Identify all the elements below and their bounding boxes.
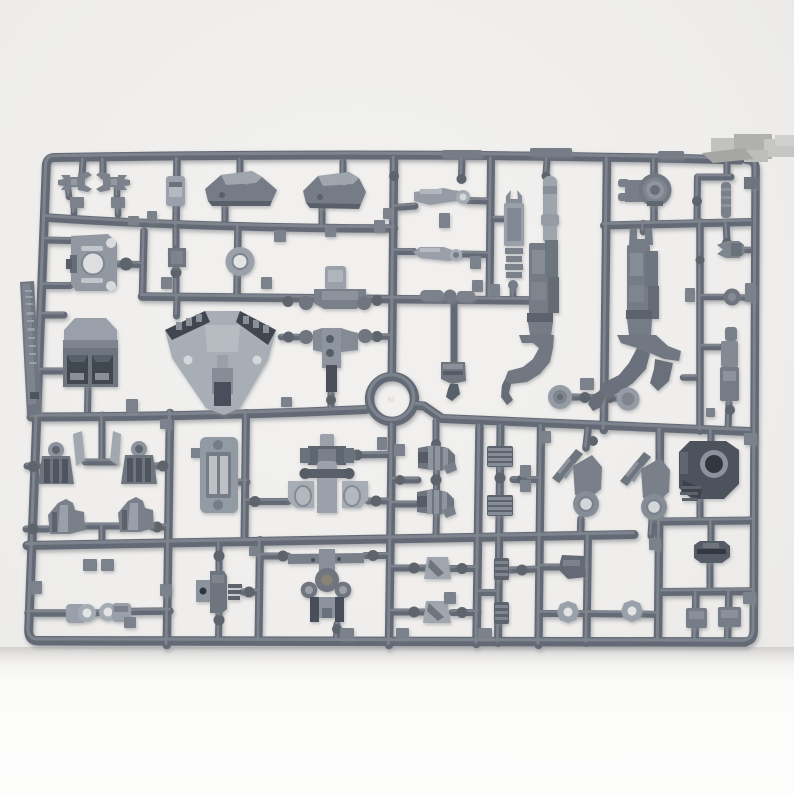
svg-text:50: 50 xyxy=(388,398,395,404)
